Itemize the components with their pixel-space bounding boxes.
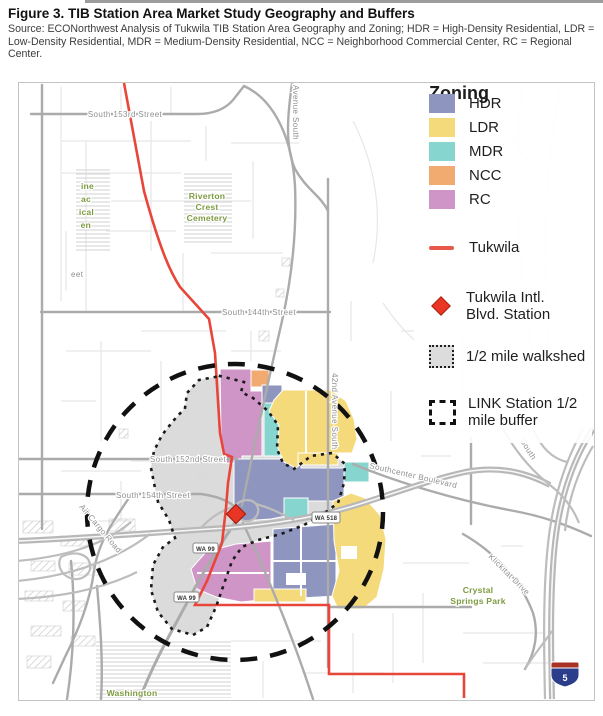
station-label-line2: Blvd. Station <box>466 306 550 323</box>
walkshed-box-icon <box>429 345 454 368</box>
label-cut-1: ine <box>81 181 94 191</box>
label-cut-3: ical <box>79 207 94 217</box>
legend-zone-mdr: MDR <box>429 142 503 161</box>
ncc-label: NCC <box>469 167 502 184</box>
buffer-box-icon <box>429 400 456 425</box>
figure-source: Source: ECONorthwest Analysis of Tukwila… <box>8 23 598 61</box>
i5-shield-text: 5 <box>562 673 567 683</box>
label-riverton-3: Cemetery <box>187 213 228 223</box>
figure-title: Figure 3. TIB Station Area Market Study … <box>8 6 598 21</box>
tukwila-line-icon <box>429 246 454 250</box>
station-label: Tukwila Intl. Blvd. Station <box>466 289 550 323</box>
label-cut-4: en <box>81 220 91 230</box>
buffer-label-line2: mile buffer <box>468 412 538 429</box>
label-42nd-ave: 42nd Avenue South <box>330 373 339 450</box>
legend-zone-rc: RC <box>429 190 491 209</box>
wa518-shield: WA 518 <box>312 512 340 523</box>
ldr-swatch <box>429 118 455 137</box>
label-riverton-2: Crest <box>196 202 219 212</box>
wa99-shield-north-text: WA 99 <box>196 547 215 553</box>
wa99-shield-south-text: WA 99 <box>177 596 196 602</box>
rc-swatch <box>429 190 455 209</box>
walkshed-label: 1/2 mile walkshed <box>466 348 585 365</box>
buffer-label-line1: LINK Station 1/2 <box>468 395 577 412</box>
legend-zone-ldr: LDR <box>429 118 499 137</box>
rc-label: RC <box>469 191 491 208</box>
wa99-shield-south: WA 99 <box>174 592 199 602</box>
mdr-swatch <box>429 142 455 161</box>
label-street-partial: eet <box>71 270 84 279</box>
station-diamond-icon <box>431 296 451 316</box>
page: { "header": { "title": "Figure 3. TIB St… <box>0 0 603 716</box>
label-s152: South 152nd Street <box>150 455 227 464</box>
label-avenue-south: Avenue South <box>291 85 300 140</box>
i5-shield: 5 <box>551 662 579 687</box>
label-klickitat: Klickitat Drive <box>487 552 532 597</box>
zone-ncc <box>251 370 269 387</box>
ldr-label: LDR <box>469 119 499 136</box>
figure-header: Figure 3. TIB Station Area Market Study … <box>8 6 598 61</box>
road-bl-vert-1 <box>67 561 74 699</box>
i5-median <box>551 429 593 699</box>
legend-station: Tukwila Intl. Blvd. Station <box>429 289 550 323</box>
page-top-divider <box>85 0 603 3</box>
legend-zone-hdr: HDR <box>429 94 502 113</box>
ncc-swatch <box>429 166 455 185</box>
zone-ldr-b <box>298 453 338 465</box>
legend-tukwila: Tukwila <box>429 239 519 256</box>
legend-zone-ncc: NCC <box>429 166 502 185</box>
label-washington: Washington <box>107 688 158 698</box>
label-riverton-1: Riverton <box>189 191 225 201</box>
label-crystal-1: Crystal <box>463 585 494 595</box>
mdr-label: MDR <box>469 143 503 160</box>
legend-walkshed: 1/2 mile walkshed <box>429 345 585 368</box>
wa99-shield-north: WA 99 <box>193 543 218 553</box>
label-s144: South 144th Street <box>222 308 296 317</box>
zone-ldr-d <box>254 589 306 602</box>
station-label-line1: Tukwila Intl. <box>466 289 545 306</box>
label-s154: South 154th Street <box>116 491 190 500</box>
label-crystal-2: Springs Park <box>450 596 505 606</box>
label-s153: South 153rd Street <box>88 110 163 119</box>
label-cut-2: ac <box>81 194 91 204</box>
tukwila-label: Tukwila <box>469 239 519 256</box>
hdr-swatch <box>429 94 455 113</box>
legend-buffer: LINK Station 1/2 mile buffer <box>429 395 577 429</box>
map-legend: Zoning HDR LDR MDR NCC RC Tukwila Tukwil… <box>414 83 592 443</box>
hdr-label: HDR <box>469 95 502 112</box>
buffer-label: LINK Station 1/2 mile buffer <box>468 395 577 429</box>
wa518-shield-text: WA 518 <box>315 516 338 522</box>
